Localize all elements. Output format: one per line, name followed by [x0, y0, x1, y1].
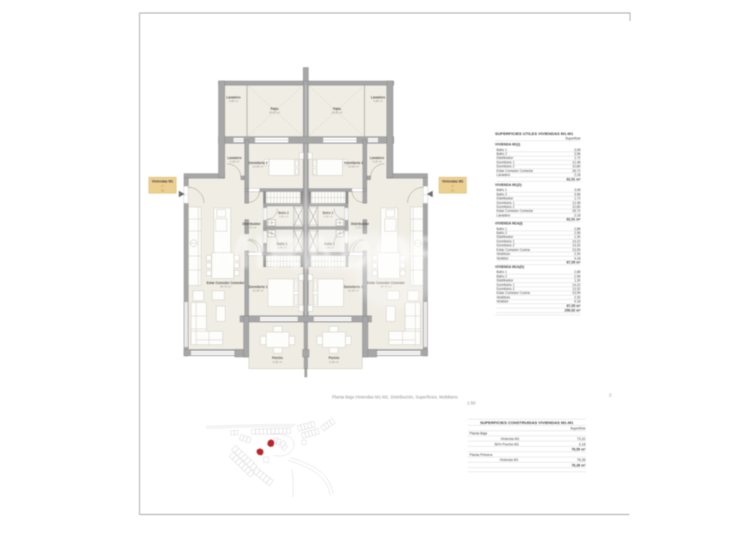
svg-text:VIVIENDA M1A(I): VIVIENDA M1A(I): [495, 222, 523, 226]
svg-text:4,88 m²: 4,88 m²: [373, 99, 383, 103]
svg-text:18,50 m²: 18,50 m²: [269, 111, 280, 115]
svg-text:Planta Baja Viviendas M1-M1. D: Planta Baja Viviendas M1-M1. Distribució…: [332, 395, 459, 400]
svg-text:Vivienda M1: Vivienda M1: [500, 458, 519, 462]
svg-text:1:50: 1:50: [467, 401, 476, 406]
svg-text:62,91 m²: 62,91 m²: [566, 218, 581, 222]
svg-text:20: 20: [451, 188, 455, 192]
svg-text:6,36 m²: 6,36 m²: [273, 360, 283, 364]
svg-text:Superficie: Superficie: [565, 137, 580, 141]
svg-text:Lavadero: Lavadero: [497, 213, 511, 217]
svg-text:Viviendas M1: Viviendas M1: [152, 180, 174, 184]
svg-text:Vestidor: Vestidor: [497, 300, 510, 304]
svg-text:10,80 m²: 10,80 m²: [252, 165, 263, 169]
svg-text:67,05 m²: 67,05 m²: [566, 304, 581, 308]
svg-text:Superficie: Superficie: [570, 427, 585, 431]
svg-text:20: 20: [161, 188, 165, 192]
svg-text:62,91 m²: 62,91 m²: [566, 177, 581, 181]
svg-text:SUPERFICIES CONSTRUIDAS VIVIEN: SUPERFICIES CONSTRUIDAS VIVIENDAS M1-M1: [480, 420, 574, 425]
svg-text:2,18 m²: 2,18 m²: [230, 160, 240, 164]
svg-text:VIVIENDA M1A(D): VIVIENDA M1A(D): [495, 265, 524, 269]
svg-text:26,72 m²: 26,72 m²: [220, 285, 231, 289]
svg-text:Lavadero: Lavadero: [497, 173, 511, 177]
svg-text:Vivienda M1: Vivienda M1: [501, 437, 520, 441]
svg-text:12,46 m²: 12,46 m²: [252, 289, 263, 293]
svg-text:VIVIENDA M1(I): VIVIENDA M1(I): [495, 143, 520, 147]
svg-text:76,36: 76,36: [577, 458, 586, 462]
svg-text:SUPERFICIES UTILES VIVIENDAS M: SUPERFICIES UTILES VIVIENDAS M1-M1: [495, 131, 574, 136]
svg-text:67,05 m²: 67,05 m²: [566, 260, 581, 264]
svg-text:2,18 m²: 2,18 m²: [372, 160, 382, 164]
svg-text:18,50 m²: 18,50 m²: [331, 111, 342, 115]
svg-text:3,18: 3,18: [579, 442, 586, 446]
svg-text:Planta Baja: Planta Baja: [470, 432, 488, 436]
svg-text:Vestidor: Vestidor: [497, 256, 510, 260]
svg-text:VIVIENDA M1(D): VIVIENDA M1(D): [495, 183, 522, 187]
svg-text:76,50 m²: 76,50 m²: [571, 448, 586, 452]
svg-text:Viviendas M1: Viviendas M1: [442, 180, 464, 184]
svg-text:76,36 m²: 76,36 m²: [571, 464, 586, 468]
svg-text:50% Porche M1: 50% Porche M1: [495, 442, 520, 446]
svg-text:MIRADOR: MIRADOR: [213, 226, 447, 278]
svg-text:259,92 m²: 259,92 m²: [565, 308, 582, 312]
svg-text:73,32: 73,32: [577, 437, 586, 441]
svg-text:6,36 m²: 6,36 m²: [329, 360, 339, 364]
svg-text:10,80 m²: 10,80 m²: [348, 165, 359, 169]
svg-text:4,88 m²: 4,88 m²: [229, 99, 239, 103]
svg-text:Planta Primera: Planta Primera: [470, 453, 493, 457]
